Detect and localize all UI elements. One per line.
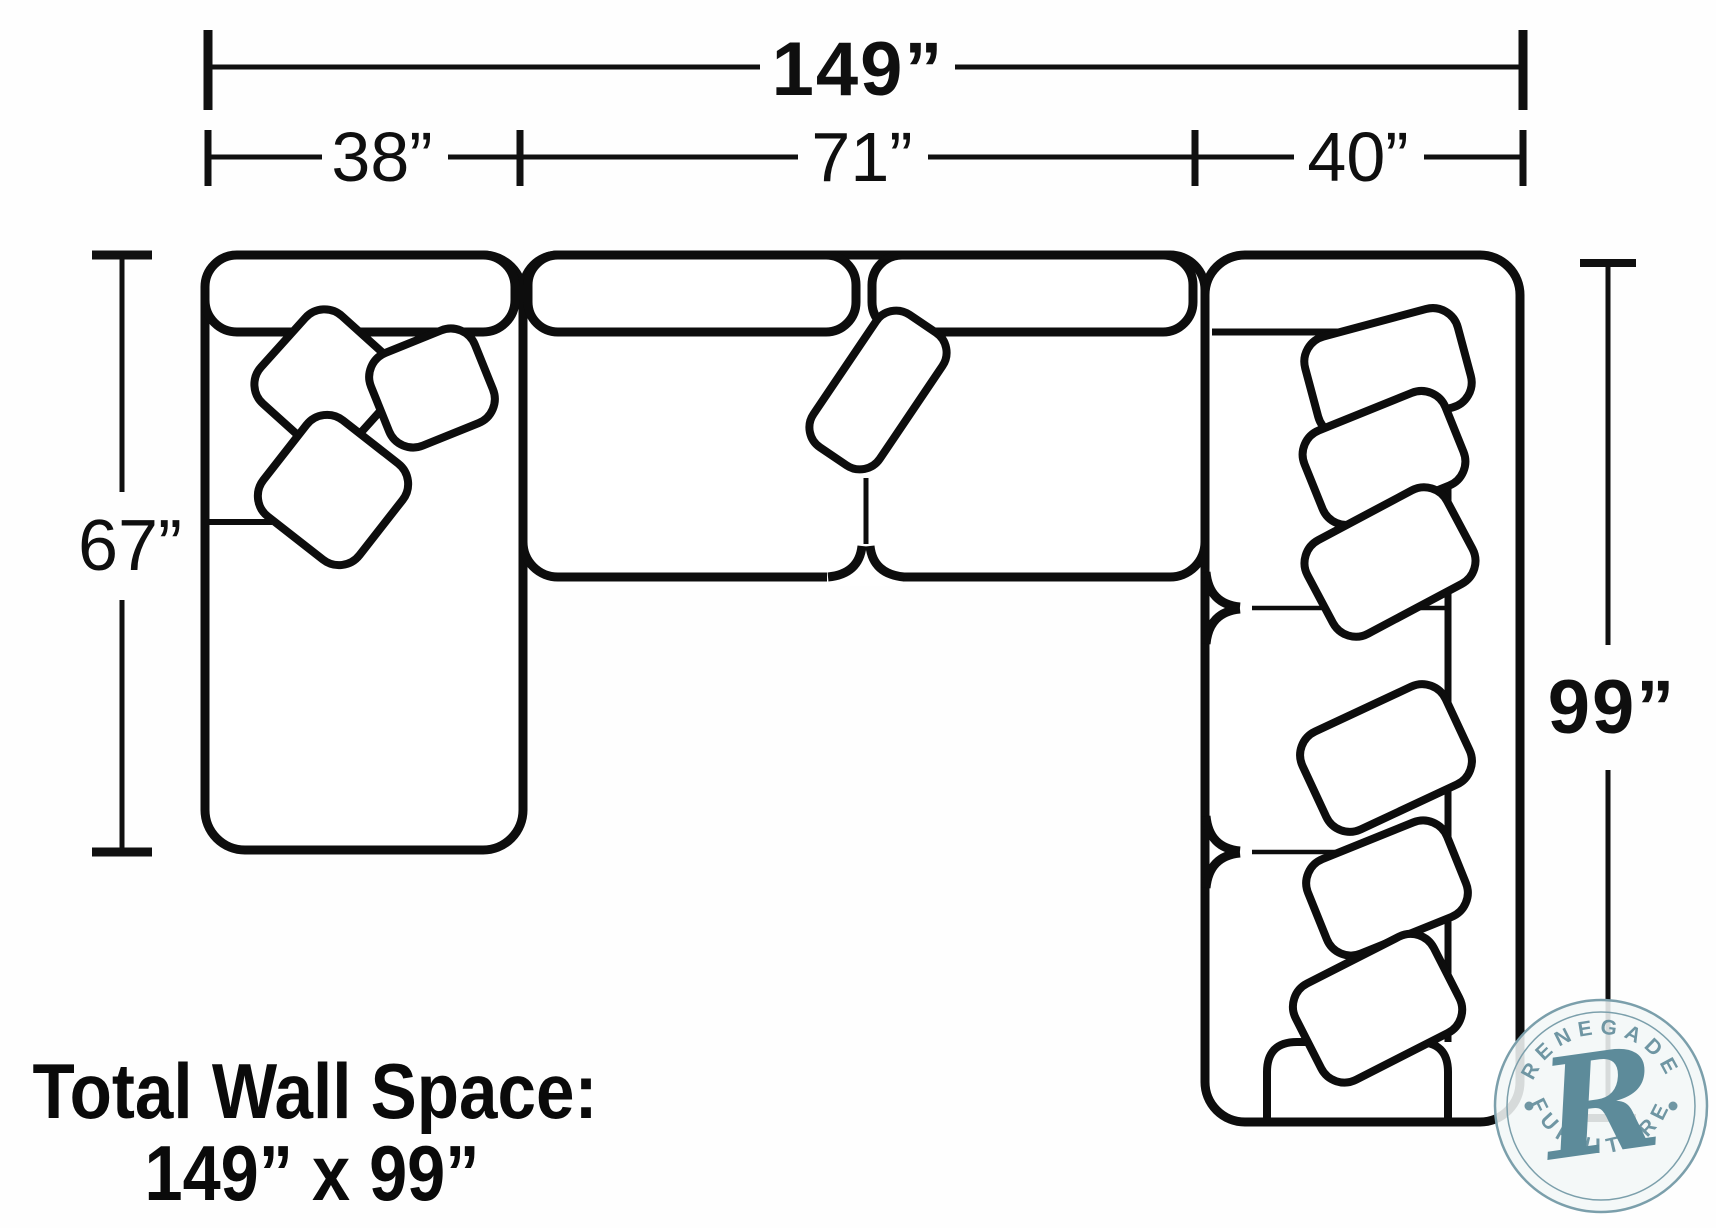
segment-width-label-right: 40” xyxy=(1307,118,1408,196)
diagram-canvas: 149” 38” 71” 40” 67” 99” xyxy=(0,0,1716,1228)
watermark-dot-left xyxy=(1525,1102,1534,1111)
sectional-dimension-diagram: 149” 38” 71” 40” 67” 99” xyxy=(0,0,1716,1228)
segment-width-label-middle: 71” xyxy=(811,118,912,196)
overall-width-label: 149” xyxy=(772,27,945,112)
segment-width-label-chaise: 38” xyxy=(331,118,432,196)
dimension-overall-width: 149” xyxy=(208,27,1523,112)
watermark-badge: RENEGADE FURNITURE R xyxy=(1495,1000,1707,1212)
left-depth-label: 67” xyxy=(78,506,182,586)
back-cushion-chaise xyxy=(205,255,515,332)
dimension-right-depth: 99” xyxy=(1548,263,1677,1118)
footer-dimensions: 149” x 99” xyxy=(145,1129,480,1217)
back-cushion-middle-1 xyxy=(528,255,856,332)
watermark-dot-right xyxy=(1669,1102,1678,1111)
dimension-left-depth: 67” xyxy=(78,255,182,852)
right-depth-label: 99” xyxy=(1548,665,1677,750)
dimension-segments: 38” 71” 40” xyxy=(208,118,1523,196)
footer-title: Total Wall Space: xyxy=(33,1047,598,1135)
footer-caption: Total Wall Space: 149” x 99” xyxy=(33,1047,598,1217)
